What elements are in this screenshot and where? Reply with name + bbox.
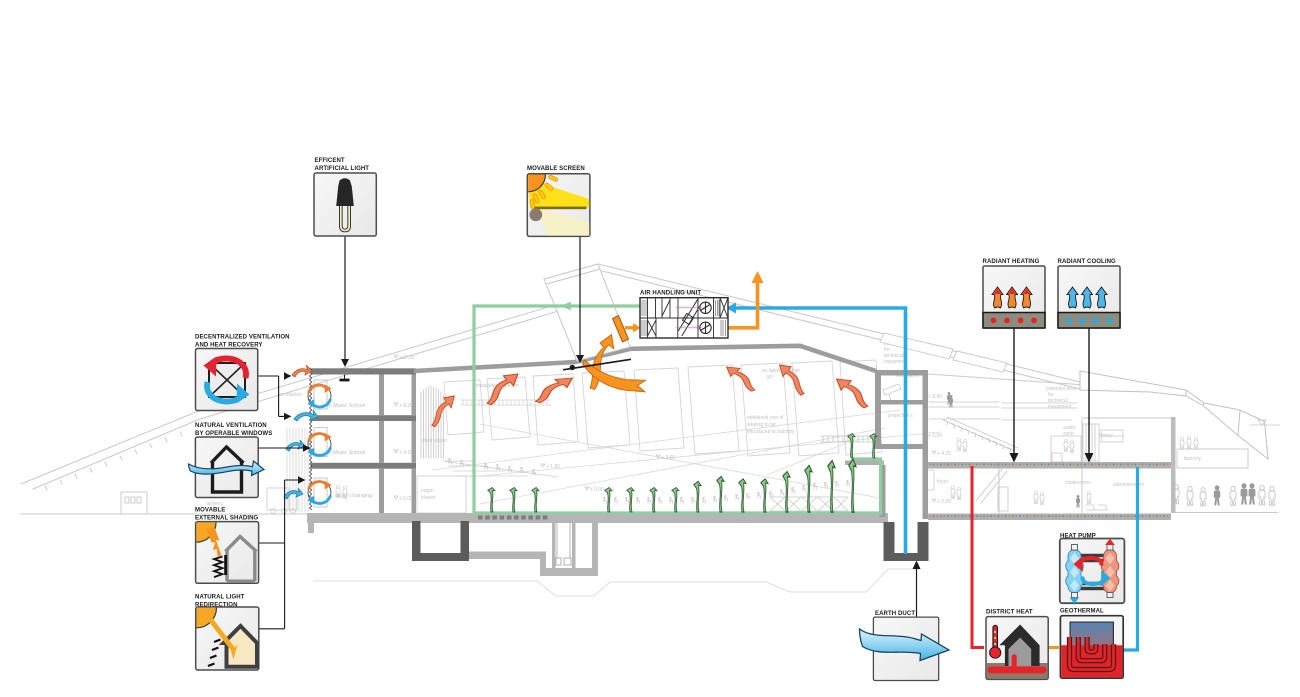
svg-text:NATURAL VENTILATION: NATURAL VENTILATION xyxy=(195,423,267,429)
svg-text:projection r.: projection r. xyxy=(888,413,914,419)
svg-text:BY OPERABLE WINDOWS: BY OPERABLE WINDOWS xyxy=(195,431,272,437)
svg-text:EFFICENT: EFFICENT xyxy=(315,158,345,164)
svg-text:foyer: foyer xyxy=(937,479,948,485)
svg-text:organ: organ xyxy=(421,488,434,494)
svg-text:MOVABLE SCREEN: MOVABLE SCREEN xyxy=(527,166,585,172)
svg-text:+ 0.00: + 0.00 xyxy=(590,487,604,493)
svg-text:organ changing: organ changing xyxy=(335,493,372,499)
svg-text:RADIANT COOLING: RADIANT COOLING xyxy=(1058,259,1117,265)
svg-text:30°: 30° xyxy=(766,375,774,381)
svg-text:+12.20: +12.20 xyxy=(399,355,415,361)
svg-text:+ 4.20: + 4.20 xyxy=(399,450,413,456)
svg-text:AIR HANDLING UNIT: AIR HANDLING UNIT xyxy=(640,291,701,297)
svg-text:ventilation: ventilation xyxy=(279,392,302,398)
svg-text:cloakrooms: cloakrooms xyxy=(1065,480,1091,486)
svg-text:EARTH DUCT: EARTH DUCT xyxy=(875,611,915,617)
svg-text:DISTRICT HEAT: DISTRICT HEAT xyxy=(986,610,1033,616)
svg-text:± 0.00: ± 0.00 xyxy=(399,496,413,502)
svg-text:+ 8.20: + 8.20 xyxy=(399,403,413,409)
svg-text:+ 8.65: + 8.65 xyxy=(928,394,942,400)
svg-text:delivery: delivery xyxy=(206,501,224,507)
svg-text:blower: blower xyxy=(421,495,436,501)
svg-text:+ 1.80: + 1.80 xyxy=(546,464,560,470)
svg-text:equipment: equipment xyxy=(1048,404,1072,410)
svg-text:EXTERNAL SHADING: EXTERNAL SHADING xyxy=(195,516,259,522)
svg-text:+ 3.60: + 3.60 xyxy=(661,455,675,461)
svg-text:additional row of: additional row of xyxy=(747,415,784,421)
svg-text:NATURAL LIGHT: NATURAL LIGHT xyxy=(195,595,245,601)
svg-text:GEOTHERMAL: GEOTHERMAL xyxy=(1060,609,1104,615)
svg-text:+ 5.50: + 5.50 xyxy=(928,433,942,439)
svg-text:+ 4.20: + 4.20 xyxy=(937,451,951,457)
svg-text:AND HEAT RECOVERY: AND HEAT RECOVERY xyxy=(195,343,263,349)
svg-text:seating to be: seating to be xyxy=(747,422,776,428)
svg-text:choir organ: choir organ xyxy=(422,438,447,444)
svg-text:+ 0.00: + 0.00 xyxy=(937,499,951,505)
svg-text:DECENTRALIZED VENTILATION: DECENTRALIZED VENTILATION xyxy=(195,335,290,341)
svg-text:RADIANT HEATING: RADIANT HEATING xyxy=(983,259,1040,265)
svg-text:balcony: balcony xyxy=(1184,456,1202,462)
svg-text:ARTIFICIAL LIGHT: ARTIFICIAL LIGHT xyxy=(315,166,370,172)
svg-text:MOVABLE: MOVABLE xyxy=(195,508,225,514)
svg-text:administration: administration xyxy=(1113,482,1144,488)
svg-text:introduced to balcony: introduced to balcony xyxy=(747,429,795,435)
